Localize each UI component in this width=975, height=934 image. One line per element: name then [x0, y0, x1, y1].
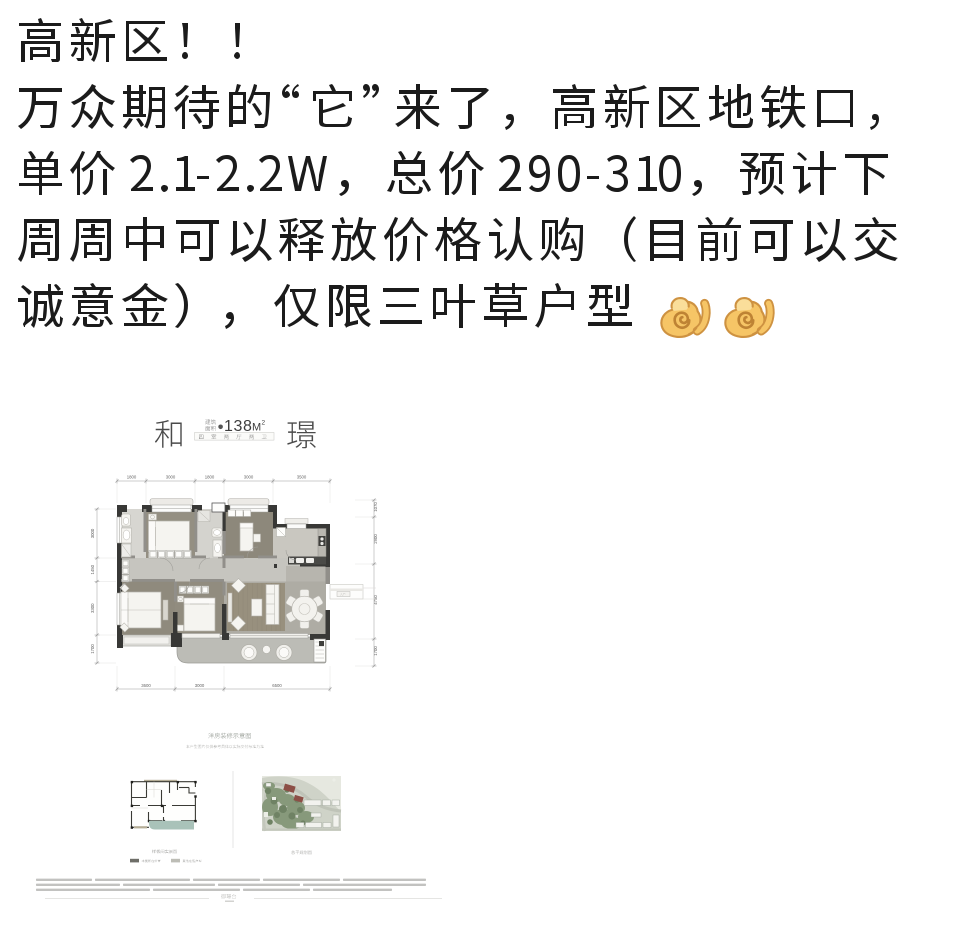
svg-text:3600: 3600 [141, 683, 151, 688]
svg-text:3500: 3500 [297, 474, 307, 479]
svg-text:2: 2 [262, 420, 266, 427]
svg-text:3300: 3300 [90, 603, 95, 613]
svg-text:1450: 1450 [90, 564, 95, 574]
svg-text:1800: 1800 [205, 474, 215, 479]
svg-text:2900: 2900 [373, 534, 378, 544]
svg-text:1070: 1070 [373, 502, 378, 512]
svg-text:1700: 1700 [90, 644, 95, 654]
svg-text:M: M [252, 422, 261, 434]
svg-text:3000: 3000 [195, 683, 205, 688]
svg-text:6500: 6500 [272, 683, 282, 688]
svg-text:3000: 3000 [166, 474, 176, 479]
svg-text:1800: 1800 [127, 474, 137, 479]
svg-text:3000: 3000 [90, 528, 95, 538]
svg-text:1700: 1700 [373, 646, 378, 656]
svg-text:3000: 3000 [244, 474, 254, 479]
svg-text:4750: 4750 [373, 595, 378, 605]
